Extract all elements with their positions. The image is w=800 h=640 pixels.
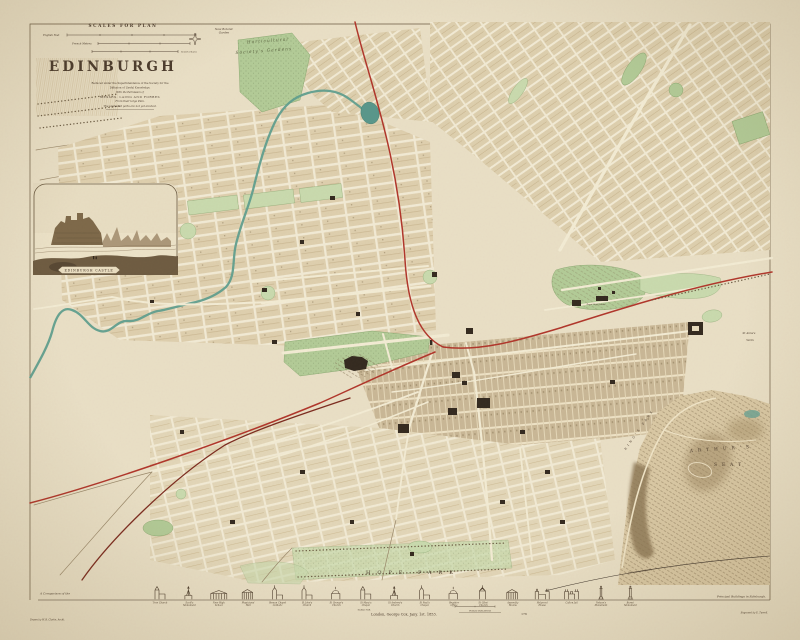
label-hope-park: HOPE PARK <box>366 570 460 576</box>
building-label: Hall <box>245 604 251 607</box>
calton-jail-block <box>572 300 581 306</box>
building-label: Chapel <box>362 604 370 607</box>
building-label: Monument <box>182 604 196 607</box>
holyrood-palace-block <box>688 322 703 335</box>
building-label: School <box>215 604 223 607</box>
svg-text:From their large Plan.: From their large Plan. <box>114 99 144 103</box>
royal-circus-garden <box>180 223 196 239</box>
small-square-garden <box>176 489 186 499</box>
building-label: Monument <box>594 604 608 607</box>
building-label: Calton Jail <box>566 602 578 605</box>
label-st-annes-2: Yards <box>746 338 754 342</box>
scott-monument-block <box>430 340 432 345</box>
label-st-annes-1: St Anne's <box>743 331 757 335</box>
svg-text:Diffusion of Useful Knowledge.: Diffusion of Useful Knowledge. <box>110 86 151 90</box>
imprint: London, George Cox, Jany. 1st. 1853. <box>371 613 437 617</box>
comparison-prefix: A Comparison of the <box>39 592 70 596</box>
principal-buildings-label: Principal Buildings in Edinburgh. <box>716 595 766 599</box>
building-label: Church <box>479 604 488 607</box>
label-royal-high-school: Royal High School <box>586 304 606 306</box>
public-buildings-label: PUBLIC BUILDINGS <box>469 611 492 613</box>
vignette-edinburgh-castle: EDINBURGH CASTLE <box>33 183 178 275</box>
label-new-botanic-2: Garden <box>219 31 230 35</box>
plate-number: 176 <box>521 612 527 616</box>
scale-bar-scotch-label: Scotch Chains <box>181 51 198 54</box>
high-school-block <box>596 296 608 301</box>
building-label: Office <box>451 604 459 607</box>
map-title: EDINBURGH <box>49 59 177 75</box>
st-giles-block <box>452 372 460 378</box>
scale-bar-french-label: French Metres <box>71 42 92 46</box>
building-label: Monument <box>623 604 637 607</box>
building-label: Tron Church <box>153 602 168 605</box>
building-label: Church <box>391 604 400 607</box>
scales-heading: SCALES FOR PLAN <box>89 23 158 28</box>
drawn-by-credit: Drawn by W. B. Clarke, Archt. <box>29 619 65 622</box>
george-square-garden <box>143 520 173 536</box>
infirmary-block <box>448 408 457 415</box>
vignette-caption: EDINBURGH CASTLE <box>65 268 114 272</box>
svg-text:With the Permission of: With the Permission of <box>116 91 145 94</box>
st-margarets-loch <box>744 410 760 418</box>
building-label: Rooms <box>508 604 518 607</box>
engraved-by-credit: Engraved by E. Turrell. <box>740 612 769 615</box>
svg-text:The unshaded parts are not yet: The unshaded parts are not yet erected. <box>104 104 157 108</box>
bellevue-garden <box>669 83 683 97</box>
building-label: Catholic <box>273 604 283 607</box>
scale-bar-english-label: English Feet <box>42 33 60 37</box>
edinburgh-antique-map: EDINBURGH CASTLE SCALES FOR PLAN English… <box>0 0 800 640</box>
scale-for-label: SCALE FOR <box>358 610 371 612</box>
university-block <box>477 398 490 408</box>
svg-text:MESSRS. LAING AND FORBES: MESSRS. LAING AND FORBES <box>100 95 160 99</box>
building-label: Church <box>332 604 341 607</box>
label-arthurs-seat-2: SEAT <box>714 463 746 468</box>
building-label: House <box>537 604 546 607</box>
register-office-block <box>466 328 473 334</box>
vignette-ribbon: EDINBURGH CASTLE <box>58 267 120 274</box>
building-label: Chapel <box>421 604 429 607</box>
svg-text:Reduced under the Superintende: Reduced under the Superintendence of the… <box>91 81 168 85</box>
building-label: Church <box>303 604 312 607</box>
heriots-hospital-block <box>398 424 409 433</box>
